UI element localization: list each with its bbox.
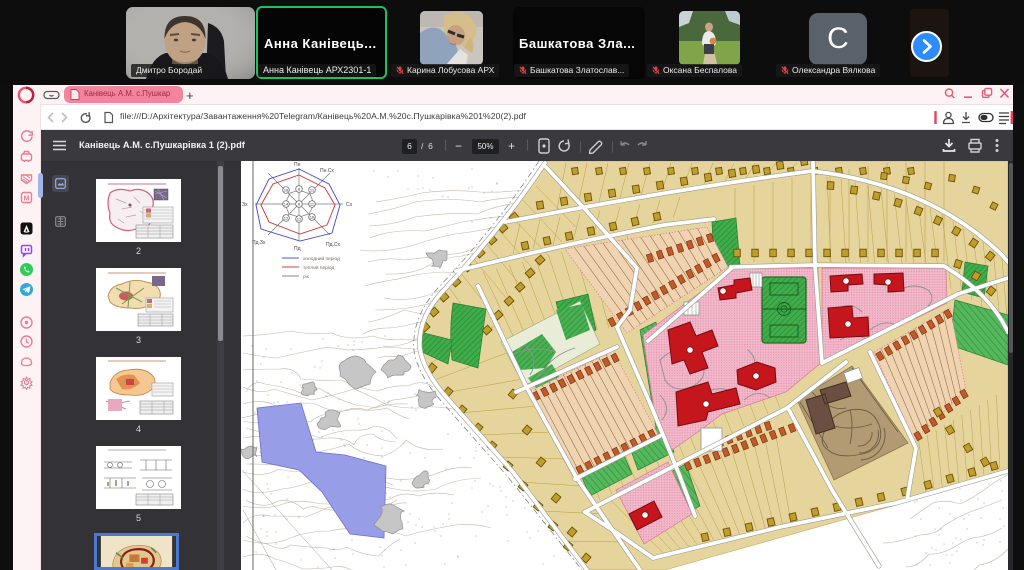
svg-text:рік: рік [303,274,310,280]
svg-text:Сх: Сх [346,202,353,208]
svg-text:Пн.Сх: Пн.Сх [320,168,334,174]
svg-text:Зх: Зх [242,202,248,208]
svg-text:холодний період: холодний період [303,255,340,262]
svg-text:Пд.Зх: Пд.Зх [252,240,266,246]
svg-text:|: | [579,139,582,153]
svg-text:M: M [24,196,30,203]
svg-text:Пн: Пн [294,162,301,168]
svg-text:теплий період: теплий період [303,264,334,271]
svg-text:Пд.Сх: Пд.Сх [326,242,341,248]
svg-text:16: 16 [310,215,315,220]
svg-text:12: 12 [284,216,289,221]
svg-text:16: 16 [284,188,289,193]
svg-text:|: | [611,139,614,153]
svg-text:Пд: Пд [294,246,301,252]
svg-text:12: 12 [297,217,302,222]
svg-text:14: 14 [284,202,289,207]
